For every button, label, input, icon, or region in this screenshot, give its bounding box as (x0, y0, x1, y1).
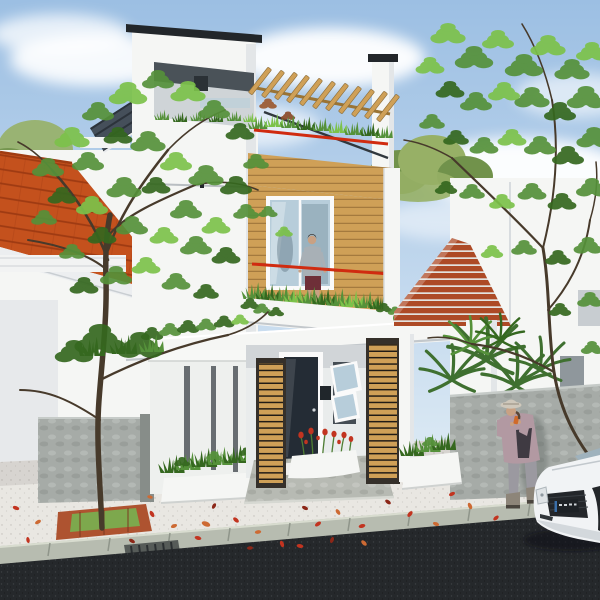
door-handle (312, 408, 315, 411)
rendering-canvas (0, 0, 600, 600)
picture-window (266, 196, 334, 290)
intercom (320, 386, 331, 400)
wood-screen-right (366, 338, 400, 484)
wood-screen-left (256, 358, 286, 488)
house-rendering (0, 0, 600, 600)
woman-hat (501, 401, 522, 408)
